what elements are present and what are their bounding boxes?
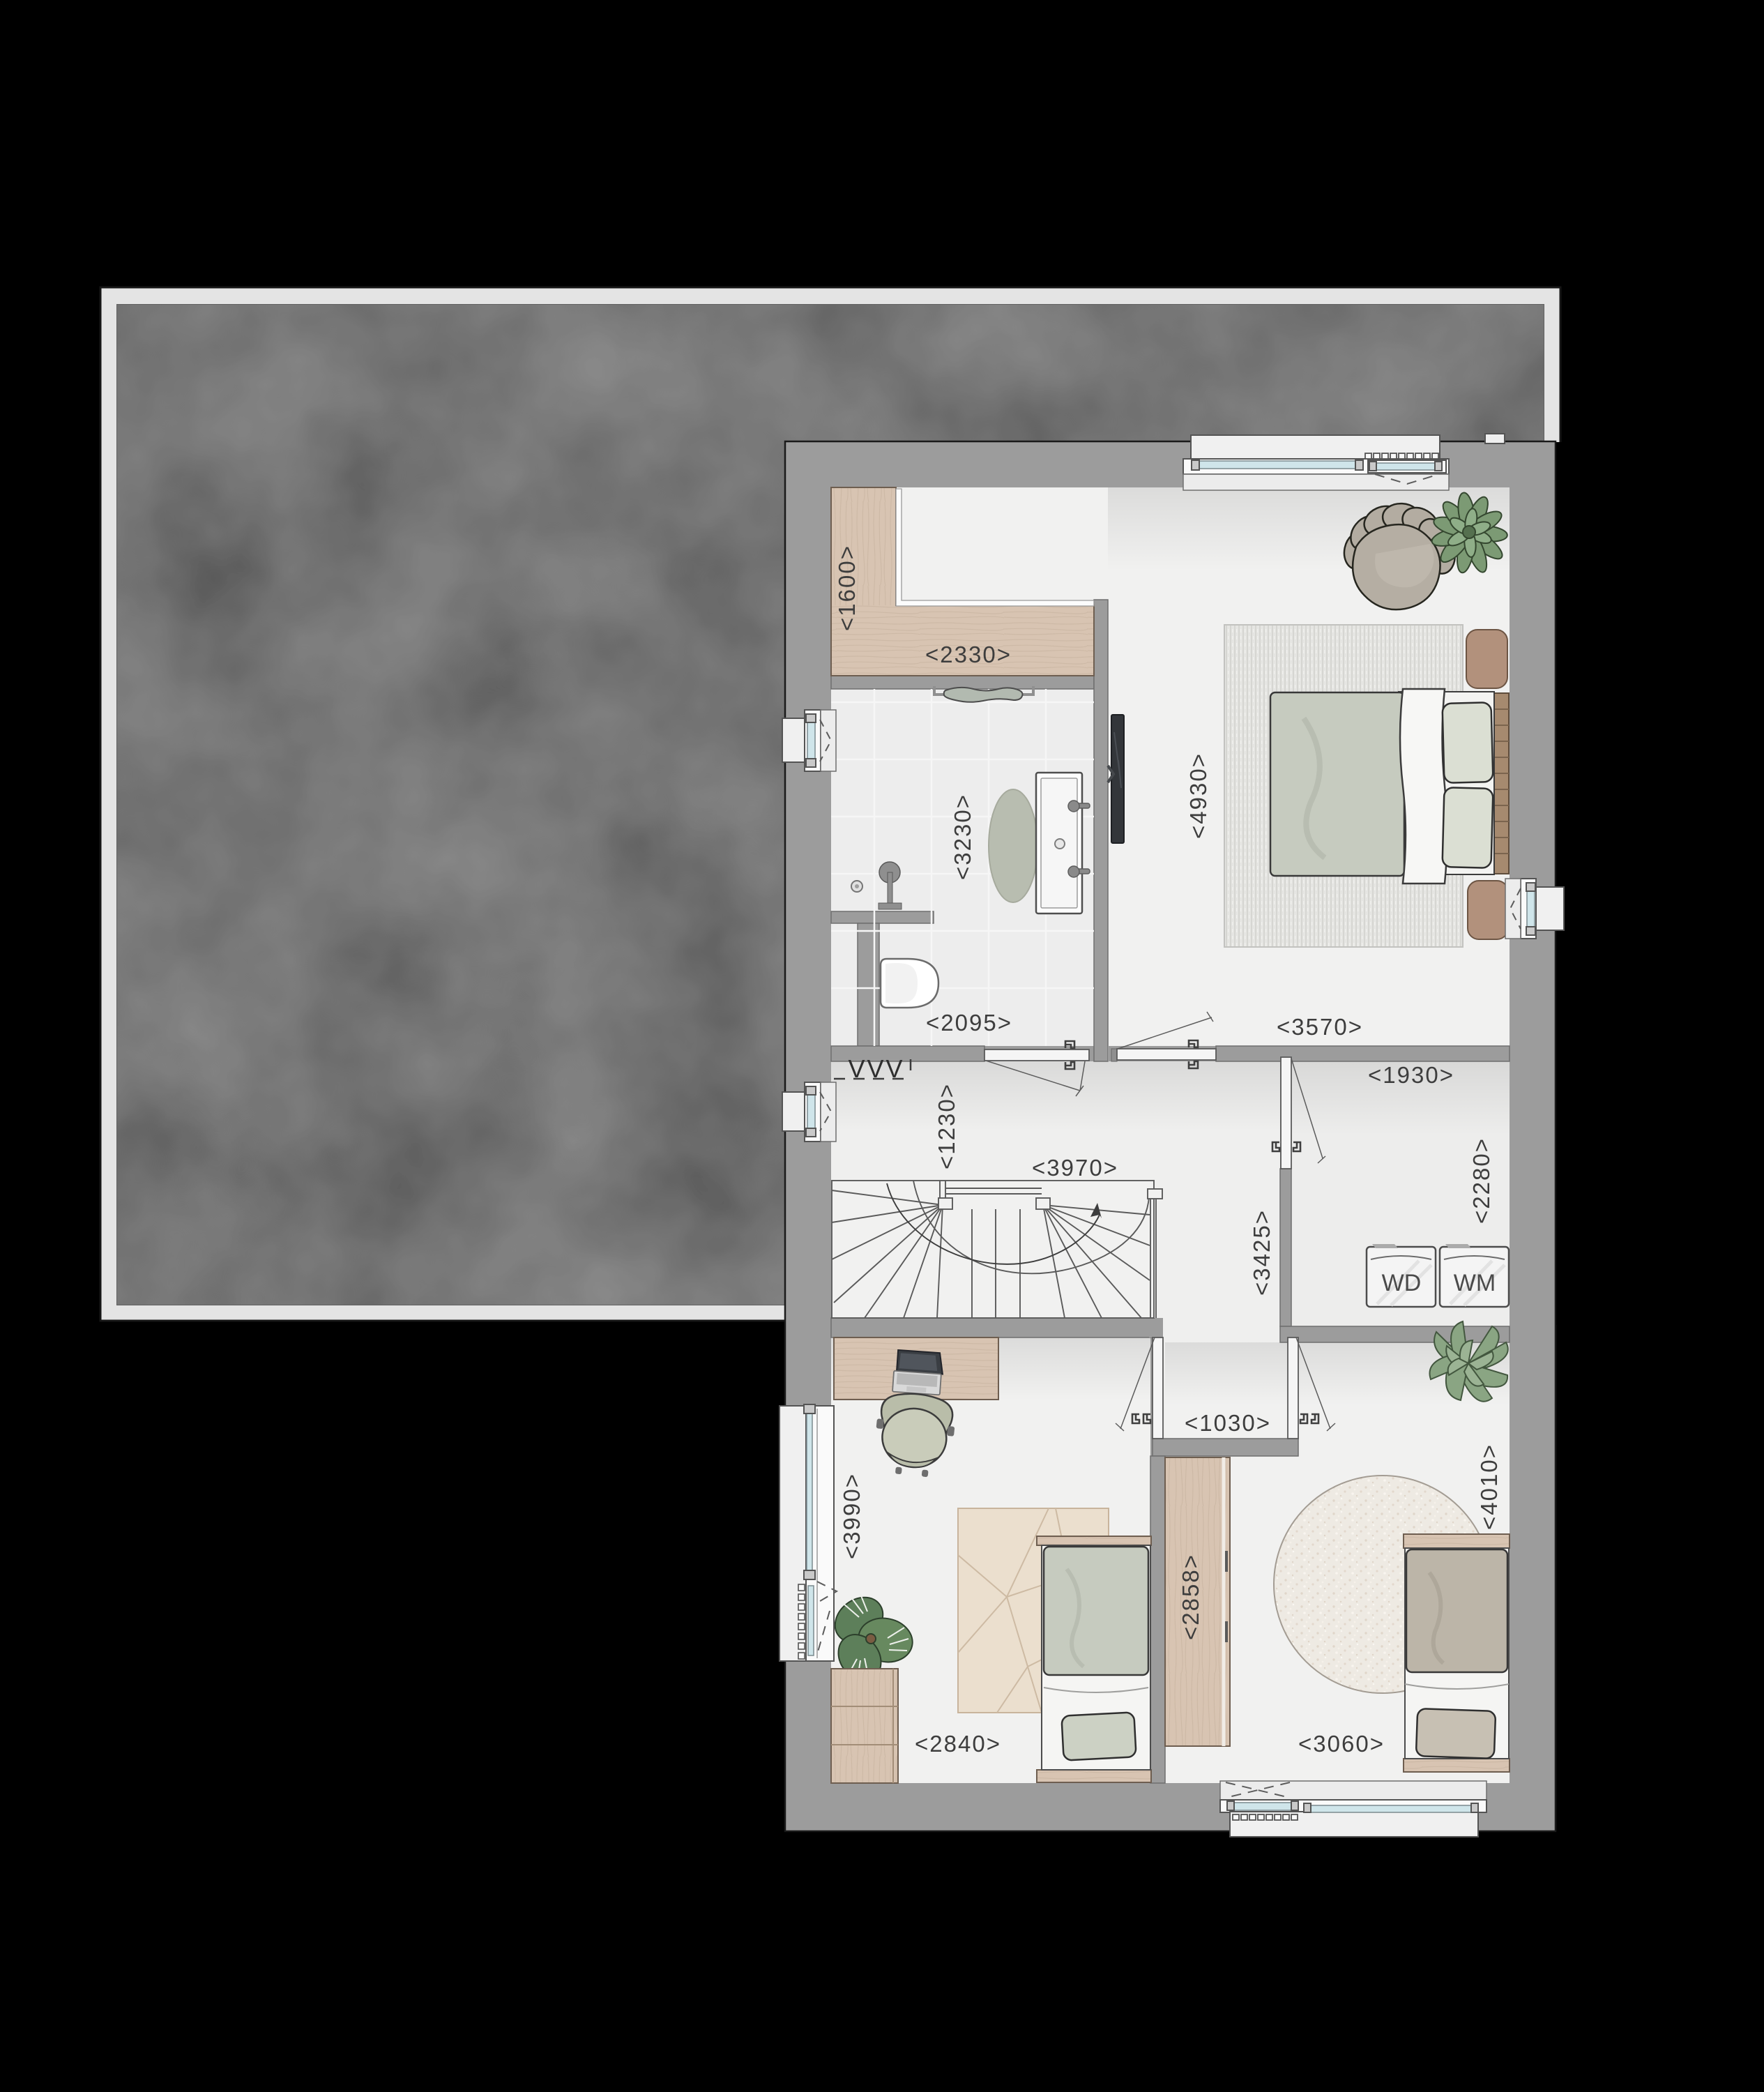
svg-text:<2280>: <2280> bbox=[1468, 1137, 1494, 1224]
svg-text:<1930>: <1930> bbox=[1368, 1062, 1454, 1088]
svg-text:<1600>: <1600> bbox=[834, 545, 860, 631]
svg-text:<1230>: <1230> bbox=[934, 1083, 959, 1169]
svg-text:WD: WD bbox=[1382, 1270, 1422, 1296]
svg-text:<4930>: <4930> bbox=[1185, 752, 1211, 839]
svg-text:<3060>: <3060> bbox=[1298, 1731, 1385, 1757]
svg-text:<2330>: <2330> bbox=[925, 642, 1012, 667]
svg-text:<4010>: <4010> bbox=[1476, 1443, 1502, 1530]
svg-text:WM: WM bbox=[1454, 1270, 1496, 1296]
svg-text:<3570>: <3570> bbox=[1277, 1014, 1363, 1040]
svg-text:<3990>: <3990> bbox=[839, 1473, 865, 1559]
svg-text:<1030>: <1030> bbox=[1185, 1410, 1271, 1436]
svg-text:<2840>: <2840> bbox=[915, 1731, 1001, 1757]
svg-text:<3230>: <3230> bbox=[950, 794, 975, 880]
svg-text:<2858>: <2858> bbox=[1178, 1554, 1203, 1640]
svg-text:<3970>: <3970> bbox=[1032, 1155, 1118, 1181]
svg-text:<3425>: <3425> bbox=[1249, 1209, 1275, 1296]
svg-text:<2095>: <2095> bbox=[926, 1010, 1012, 1036]
